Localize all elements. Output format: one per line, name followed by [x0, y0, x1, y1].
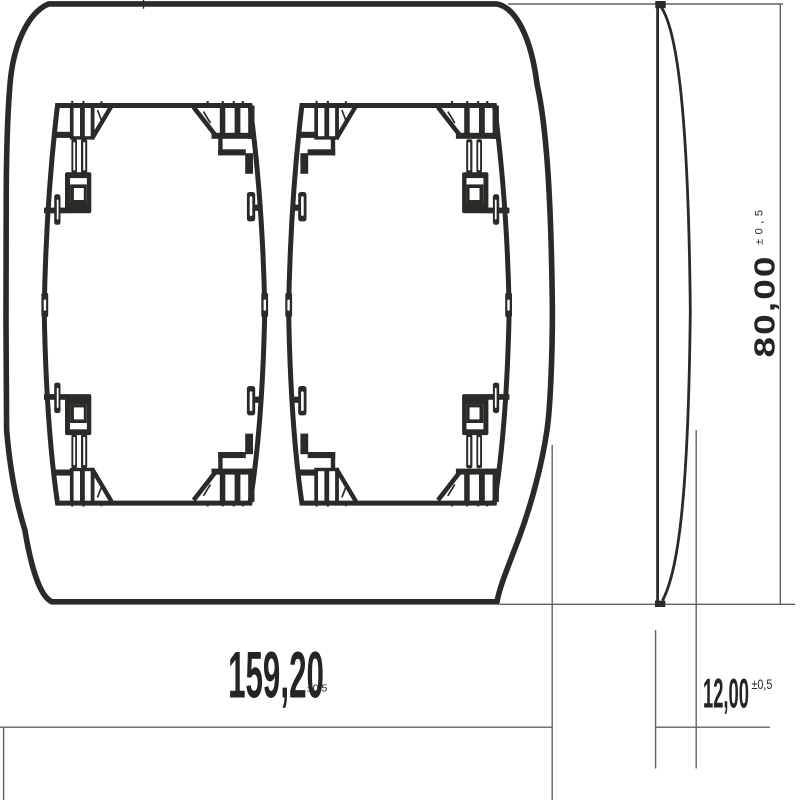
svg-text:80,00: 80,00: [749, 257, 781, 358]
svg-text:±0,5: ±0,5: [307, 683, 328, 695]
svg-text:159,20: 159,20: [228, 637, 324, 711]
svg-text:12,00: 12,00: [703, 670, 749, 717]
svg-text:±0,5: ±0,5: [752, 677, 773, 692]
